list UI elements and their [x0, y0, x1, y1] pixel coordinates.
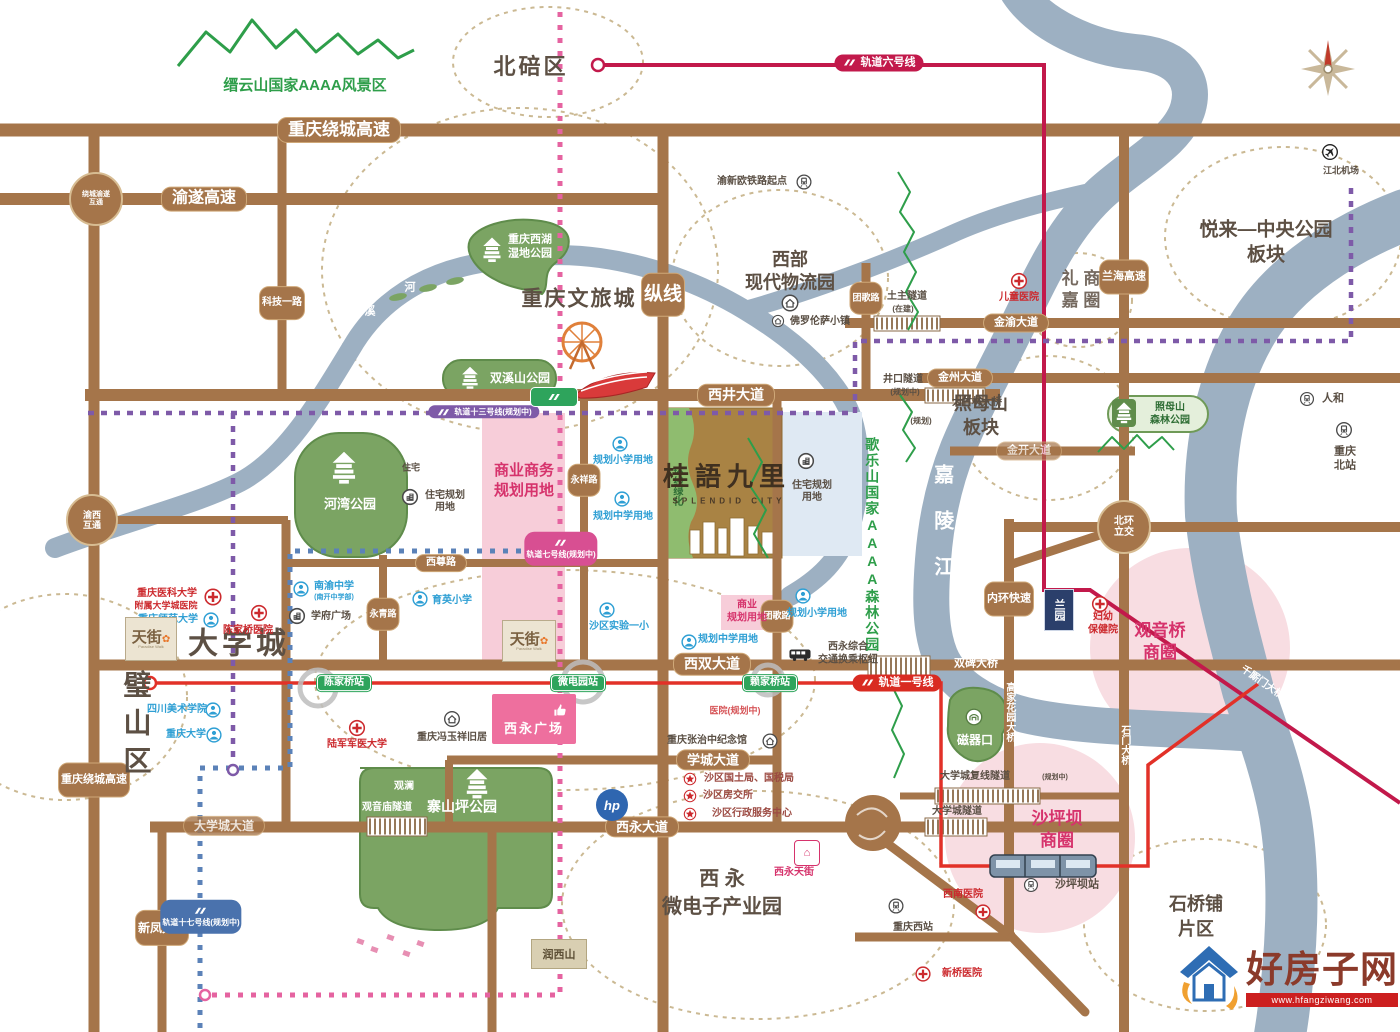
poi-florentia-icon — [772, 315, 785, 328]
school-lujun-label: 陆军军医大学 — [327, 739, 387, 751]
road-label-yusui: 渝遂高速 — [161, 187, 247, 212]
metro-line13-label: 轨道十三号线(规划中) — [428, 405, 539, 418]
park-hewan-label: 河湾公园 — [324, 496, 376, 511]
plan-middle-b-label: 规划中学用地 — [698, 634, 758, 646]
river-label-jialing: 嘉陵江 — [929, 464, 953, 602]
plan-primary-b-icon — [795, 588, 811, 604]
hospital-yikeda-sub: 附属大学城医院 — [134, 601, 197, 612]
tunnel-jingkou-label: 井口隧道 — [883, 374, 923, 386]
road-label-tuange-n: 团歌路 — [849, 282, 882, 315]
poi-yuxinou-label: 渝新欧铁路起点 — [717, 176, 787, 188]
road-label-zongxian: 纵线 — [641, 273, 685, 317]
bridge-gaojiahuayuan: 高家花园大桥 — [1003, 682, 1015, 742]
station-shapingba-icon — [1024, 878, 1039, 893]
school-shaqu-shiyan-icon — [599, 602, 615, 618]
hospital-xinqiao-cross-icon — [915, 966, 931, 982]
station-shapingba-label: 沙坪坝站 — [1055, 879, 1099, 892]
school-yuying-label: 育英小学 — [432, 595, 472, 607]
station-xizhan-label: 重庆西站 — [893, 922, 933, 934]
hospital-yikeda-label: 重庆医科大学 — [137, 588, 197, 600]
area-xiyong-microelectronics: 西 永 微电子产业园 — [662, 865, 782, 921]
plan-resid-right-label: 住宅规划 用地 — [792, 480, 832, 504]
watermark-site-name: 好房子网 — [1246, 952, 1398, 989]
station-renhe-label: 人和 — [1322, 393, 1344, 406]
plan-primary-b-label: 规划小学用地 — [787, 608, 847, 620]
tunnel-jingkou-status: (规划中) — [890, 387, 919, 396]
project-title: 桂語九里 — [663, 463, 791, 494]
bridge-shuangbei: 双碑大桥 — [954, 658, 998, 671]
poi-zhangzhizhong-icon — [762, 733, 778, 749]
airport-jiangbei-label: 江北机场 — [1323, 166, 1359, 177]
school-chongda-label: 重庆大学 — [166, 729, 206, 741]
watermark: 好房子网 www.hfangziwang.com — [1176, 942, 1398, 1016]
station-laijiaqiao: 赖家桥站 — [743, 675, 797, 691]
tunnel-fuxian-label: 大学城复线隧道 — [940, 771, 1010, 783]
hub-label: 西永综合 交通换乘枢纽 — [818, 642, 878, 667]
poi-xuefu-plaza-label: 学府广场 — [311, 611, 351, 623]
scenic-jinyunshan: 缙云山国家AAAA风景区 — [223, 77, 386, 95]
station-renhe-icon — [1300, 392, 1315, 407]
bridge-qiansimen: 千厮门大桥 — [1238, 664, 1286, 702]
plan-middle-a-icon — [614, 491, 630, 507]
road-label-daxuecheng: 大学城大道 — [183, 816, 265, 836]
park-shuangxishan-pagoda-icon — [461, 367, 479, 390]
hospital-xinan-cross-icon — [975, 904, 991, 920]
road-label-yongxiang: 永祥路 — [567, 464, 600, 497]
road-label-raocheng-top: 重庆绕城高速 — [277, 117, 401, 143]
district-yuelai-central-park: 悦来—中央公园 板块 — [1199, 218, 1332, 267]
tunnel-fuxian-status: (规划中) — [1042, 774, 1068, 782]
school-yuying-icon — [412, 591, 428, 607]
poi-zhangzhizhong-label: 重庆张治中纪念馆 — [667, 735, 747, 747]
tunnel-daxuecheng-label: 大学城隧道 — [932, 806, 982, 818]
bridge-dazhulin-status: (规划) — [910, 416, 931, 425]
metro-line7-label: 轨道七号线(规划中) — [524, 532, 597, 566]
interchange-yuxi: 渝西 互通 — [66, 494, 118, 546]
school-chongda-icon — [206, 727, 222, 743]
school-shaqu-shiyan-label: 沙区实验一小 — [589, 621, 649, 633]
hospital-xinqiao-label: 新桥医院 — [942, 968, 982, 980]
gov-xingzheng-label: 沙区行政服务中心 — [712, 808, 792, 820]
road-label-jinkai: 金开大道 — [996, 442, 1062, 461]
gov-xingzheng-star-icon — [684, 808, 697, 821]
poi-fengyuxiang-icon — [444, 711, 461, 728]
hub-bus-icon — [789, 649, 811, 662]
poi-xuefu-plaza-icon — [289, 608, 306, 625]
plan-middle-b-icon — [681, 634, 697, 650]
brand-hp: hp — [596, 789, 628, 821]
poi-guanlan: 观澜 — [394, 781, 414, 793]
school-chuanmei-icon — [205, 702, 221, 718]
school-nanyu-label: 南渝中学 — [314, 581, 354, 593]
station-beizhan-icon — [1336, 422, 1353, 439]
district-beibei: 北碚区 — [493, 54, 568, 80]
mall-xiyong-tianjie-label: 西永天街 — [774, 867, 814, 879]
zone-biz-plan-label: 商业 规划用地 — [727, 600, 767, 625]
project-lanyuan: 兰园 — [1044, 589, 1074, 631]
river-label-he: 河 — [405, 282, 416, 295]
road-label-xuecheng: 学城大道 — [676, 749, 750, 770]
mall-xiyong-tianjie-icon: ⌂ — [794, 840, 820, 866]
hospital-chenjiaqiao-cross-icon — [251, 605, 268, 622]
park-hewan-pagoda-icon — [331, 452, 357, 485]
interchange-raocheng-yusui: 绕城渝遂 互通 — [69, 172, 123, 226]
bridge-dongshuimen: 东水门大桥 — [1288, 705, 1336, 743]
park-zhaomushan-pagoda-icon — [1116, 402, 1133, 423]
plan-primary-a-label: 规划小学用地 — [593, 455, 653, 467]
bridge-shimen: 石门大桥 — [1118, 725, 1130, 765]
road-label-xijing: 西井大道 — [697, 384, 775, 407]
plan-resid-left-icon — [402, 489, 419, 506]
road-label-lanhai: 兰海高速 — [1099, 260, 1149, 295]
project-runxishan: 润西山 — [531, 939, 587, 969]
metro-line1-label: 轨道一号线 — [853, 675, 942, 692]
metro-line6-label: 轨道六号线 — [835, 55, 924, 72]
school-nanyu-sub: (南开中学部) — [314, 594, 354, 602]
biz-lijia: 礼 商 嘉 圈 — [1062, 268, 1101, 312]
station-chenjiaqiao: 陈家桥站 — [317, 675, 371, 691]
tunnel-guanyinmiao: 观音庙隧道 — [362, 802, 412, 814]
zone-biz-commerce-label: 商业商务 规划用地 — [494, 461, 554, 502]
tunnel-tuzhu-label: 土主隧道 — [887, 291, 927, 303]
hospital-ertong-cross-icon — [1011, 273, 1028, 290]
mall-tianjie-xiyong: 天街✿Paradise Walk — [502, 620, 556, 662]
metro-line15-badge — [530, 387, 578, 407]
airport-jiangbei-icon — [1322, 144, 1339, 161]
park-xihu-pagoda-icon — [482, 238, 502, 263]
poi-logistics-icon — [781, 294, 799, 312]
plan-primary-a-icon — [612, 436, 628, 452]
mall-xiyong-plaza: 西永广场 — [492, 694, 576, 744]
park-xihu-label: 重庆西湖 湿地公园 — [508, 233, 552, 262]
gov-guotu-label: 沙区国土局、国税局 — [704, 773, 794, 785]
hospital-xinan-label: 西南医院 — [943, 889, 983, 901]
station-beizhan-label: 重庆 北站 — [1334, 445, 1356, 473]
park-zhaishanping-pagoda-icon — [465, 769, 489, 799]
road-label-xishuang: 西双大道 — [673, 653, 751, 676]
gov-guotu-star-icon — [684, 773, 697, 786]
district-bishan: 璧山区 — [119, 670, 152, 784]
tunnel-tuzhu-status: (在建) — [892, 304, 913, 313]
park-ciqikou-label: 磁器口 — [957, 733, 993, 747]
biz-guanyinqiao: 观音桥 商圈 — [1135, 620, 1186, 664]
bridge-dazhulin-label: 大竹林大桥 — [952, 397, 1002, 409]
gov-fangjiao-star-icon — [684, 790, 697, 803]
plan-resid-left-label: 住宅规划 用地 — [425, 490, 465, 514]
poi-yuxinou-rail-icon — [796, 174, 812, 190]
hospital-yikeda-cross-icon — [204, 588, 222, 606]
river-label-changjiang-1: 长 — [1326, 637, 1348, 663]
park-zhaishanping-label: 寨山坪公园 — [427, 799, 497, 816]
river-label-changjiang-2: 江 — [1210, 817, 1232, 843]
road-label-neihuan: 内环快速 — [984, 582, 1034, 617]
hospital-planned-label: 医院(规划中) — [710, 706, 761, 717]
project-subtitle: SPLENDID CITY — [673, 496, 786, 505]
park-shuangxishan-label: 双溪山公园 — [490, 371, 550, 385]
road-label-jinzhou: 金州大道 — [927, 369, 993, 388]
station-xizhan-icon — [888, 898, 904, 914]
area-wenlvcheng: 重庆文旅城 — [522, 288, 637, 313]
gov-fangjiao-label: 沙区房交所 — [703, 790, 753, 802]
park-zhaomushan-label: 照母山 森林公园 — [1150, 401, 1190, 427]
poi-fengyuxiang-label: 重庆冯玉祥旧居 — [417, 732, 487, 744]
hfangziwang-logo-icon — [1176, 942, 1242, 1016]
road-label-keji-yilu: 科技一路 — [259, 286, 305, 320]
station-weidianyuan: 微电园站 — [551, 675, 605, 691]
map-stage: 重庆绕城高速渝遂高速西井大道金渝大道金州大道金开大道西双大道学城大道西永大道西尊… — [0, 0, 1400, 1032]
area-logistics-park: 西部 现代物流园 — [745, 249, 835, 296]
road-label-jinyu: 金渝大道 — [983, 314, 1049, 333]
mall-tianjie-daxuecheng: 天街✿Paradise Walk — [125, 617, 177, 661]
road-label-yongqing: 永青路 — [366, 598, 399, 631]
school-lujun-cross-icon — [349, 720, 366, 737]
metro-line17-label: 轨道十七号线(规划中) — [160, 900, 241, 934]
park-ciqikou-gate-icon — [965, 708, 983, 726]
poi-florentia-label: 佛罗伦萨小镇 — [790, 316, 850, 328]
area-shiqiaopu: 石桥铺 片区 — [1169, 892, 1223, 942]
plan-middle-a-label: 规划中学用地 — [593, 511, 653, 523]
hospital-ertong-label: 儿童医院 — [999, 292, 1039, 304]
plan-resid-hint: 住宅 — [402, 463, 420, 474]
biz-shapingba: 沙坪坝 商圈 — [1032, 808, 1083, 852]
scenic-geleshan: 歌乐山国家AAAA森林公园 — [864, 437, 881, 653]
interchange-beihuan: 北环 立交 — [1097, 500, 1151, 554]
river-label-xi: 溪 — [365, 306, 376, 319]
school-shifan-icon — [203, 612, 219, 628]
school-chuanmei-label: 四川美术学院 — [147, 704, 207, 716]
road-label-xizun: 西尊路 — [415, 554, 467, 572]
plan-resid-right-icon — [798, 453, 815, 470]
map-labels-layer: 重庆绕城高速渝遂高速西井大道金渝大道金州大道金开大道西双大道学城大道西永大道西尊… — [0, 0, 1400, 1032]
hospital-chenjiaqiao-label: 陈家桥医院 — [223, 625, 273, 637]
hospital-fuyou-label: 妇幼 保健院 — [1088, 612, 1118, 637]
watermark-url[interactable]: www.hfangziwang.com — [1246, 993, 1398, 1007]
school-nanyu-icon — [293, 581, 309, 597]
hospital-fuyou-cross-icon — [1092, 596, 1109, 613]
